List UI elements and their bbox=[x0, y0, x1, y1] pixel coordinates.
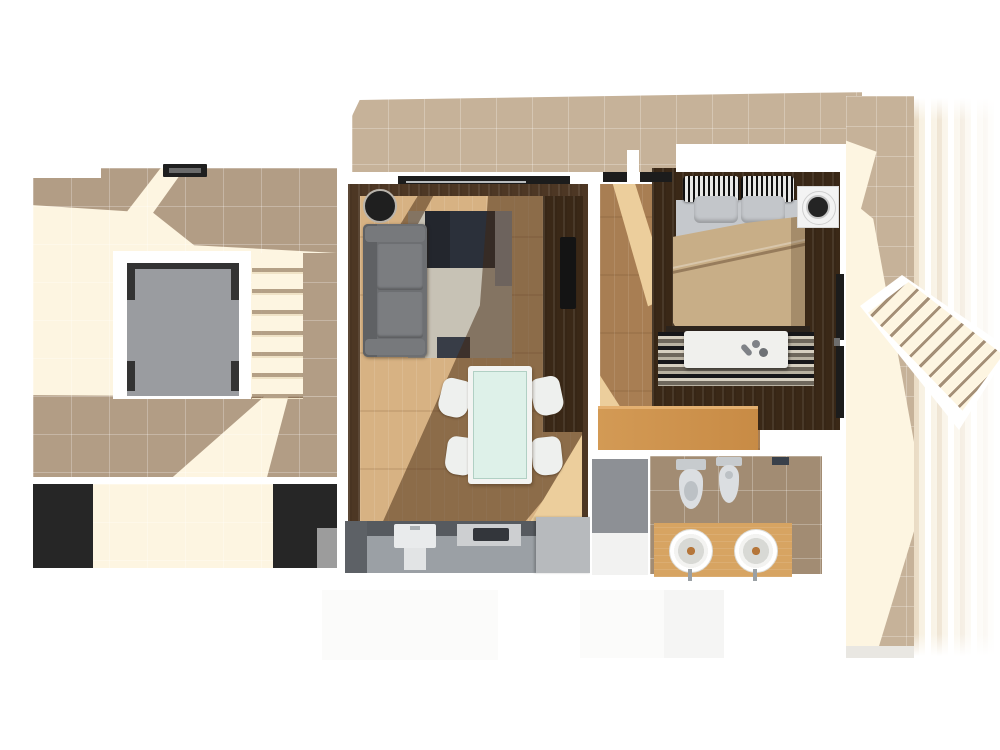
slipper bbox=[740, 343, 753, 357]
floor-plan-render bbox=[0, 0, 1000, 750]
bathroom bbox=[590, 453, 832, 577]
bench bbox=[684, 331, 788, 368]
kitchen-sink bbox=[394, 524, 436, 548]
washing-machine bbox=[797, 186, 839, 228]
washing-machine-drum bbox=[806, 195, 830, 219]
wall-pier bbox=[627, 150, 639, 180]
ground-reflection bbox=[664, 590, 724, 658]
bedroom-top-wall bbox=[676, 144, 866, 172]
sliding-door-rail bbox=[406, 181, 526, 183]
duvet-edge-shade bbox=[791, 216, 805, 332]
planter-gray-inset bbox=[317, 528, 337, 568]
duvet-fold-highlight bbox=[673, 235, 805, 270]
bedroom-window bbox=[603, 172, 627, 182]
vanity-counter bbox=[654, 523, 792, 577]
toilet bbox=[676, 459, 706, 511]
kitchen-counter bbox=[345, 521, 592, 573]
sink-faucet bbox=[688, 569, 692, 581]
corner-bracket bbox=[127, 361, 135, 391]
dresser bbox=[598, 406, 758, 450]
terrace-wall-edge bbox=[33, 168, 101, 178]
toilet-bowl-inner bbox=[684, 481, 698, 501]
round-sink bbox=[669, 529, 713, 573]
round-sink bbox=[734, 529, 778, 573]
bidet bbox=[716, 457, 742, 505]
kitchen-tall-unit bbox=[345, 521, 367, 573]
rug-patch-black bbox=[425, 211, 450, 268]
dresser-edge bbox=[598, 406, 758, 409]
stairwell-top-bar bbox=[127, 263, 239, 269]
bidet-drain bbox=[725, 471, 733, 479]
cooktop bbox=[473, 528, 509, 541]
outdoor-walkway bbox=[846, 96, 914, 654]
dining-table-glass-top bbox=[473, 371, 527, 479]
sofa-backrest bbox=[363, 224, 377, 357]
sofa-armrest bbox=[365, 226, 425, 242]
kitchen-island bbox=[536, 517, 592, 573]
sofa-armrest bbox=[365, 339, 425, 355]
walkway-end-cap bbox=[846, 646, 914, 658]
side-window-handle bbox=[834, 338, 840, 346]
corner-bracket bbox=[127, 268, 135, 300]
sink-faucet bbox=[410, 526, 420, 530]
gray-pillow bbox=[741, 196, 785, 223]
ground-reflection bbox=[322, 590, 498, 660]
bedroom-window bbox=[640, 172, 672, 182]
dining-chair bbox=[530, 436, 564, 477]
terrace-staircase bbox=[252, 253, 303, 399]
tv bbox=[560, 237, 576, 309]
corner-bracket bbox=[231, 361, 239, 391]
door-mat-inset bbox=[169, 168, 201, 173]
sofa bbox=[363, 224, 427, 357]
ground-reflection bbox=[580, 590, 664, 658]
round-side-table bbox=[363, 189, 397, 223]
bathroom-vent bbox=[772, 457, 789, 465]
planter-right bbox=[273, 484, 337, 568]
side-window bbox=[836, 346, 844, 418]
sofa-cushion bbox=[377, 244, 423, 290]
terrace-lower-strip bbox=[33, 484, 337, 568]
shower bbox=[592, 459, 648, 533]
gray-pillow bbox=[694, 196, 738, 223]
side-window bbox=[836, 274, 844, 340]
sofa-cushion bbox=[377, 292, 423, 338]
sink-faucet bbox=[753, 569, 757, 581]
kitchen-sink-ledge bbox=[404, 548, 426, 570]
corner-bracket bbox=[231, 268, 239, 300]
bathroom-white-floor bbox=[592, 533, 648, 575]
dining-table bbox=[468, 366, 532, 484]
planter-left bbox=[33, 484, 93, 568]
slipper bbox=[752, 340, 760, 348]
terrace-door-mat bbox=[163, 164, 207, 177]
duvet bbox=[673, 216, 805, 332]
cooktop-panel bbox=[457, 524, 521, 546]
slipper bbox=[759, 348, 768, 357]
stairwell-opening bbox=[127, 263, 239, 396]
